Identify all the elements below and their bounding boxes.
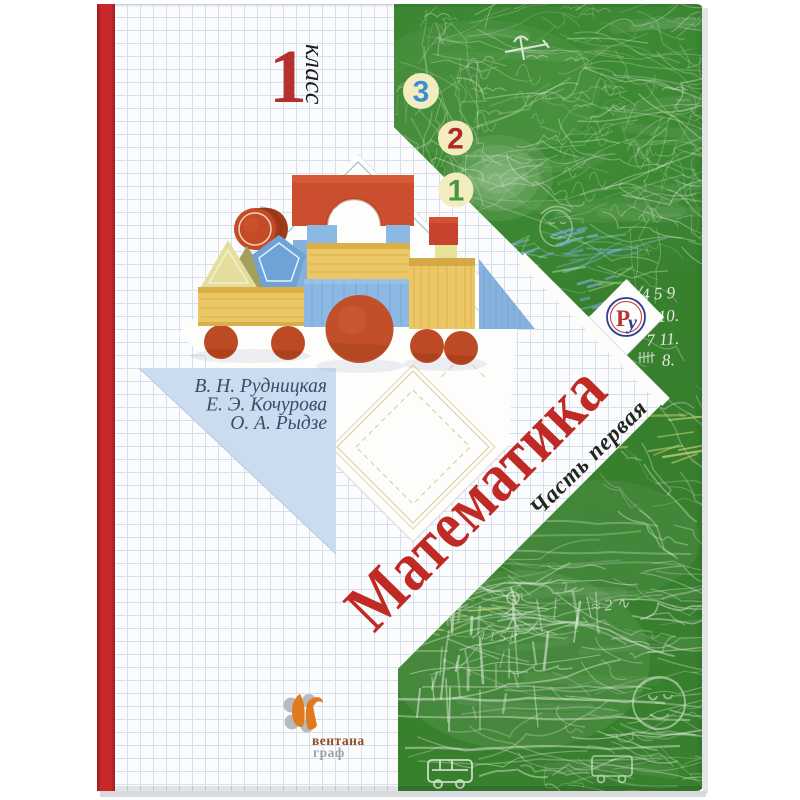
svg-text:7 11.: 7 11. — [646, 329, 680, 350]
svg-text:класс: класс — [300, 44, 329, 105]
svg-text:О. А. Рыдзе: О. А. Рыдзе — [230, 413, 327, 434]
svg-text:1: 1 — [448, 175, 465, 208]
svg-text:у: у — [626, 312, 637, 334]
svg-text:3: 3 — [413, 76, 430, 109]
svg-text:8.: 8. — [661, 350, 675, 370]
svg-text:2: 2 — [447, 123, 464, 156]
svg-text:граф: граф — [313, 745, 345, 760]
